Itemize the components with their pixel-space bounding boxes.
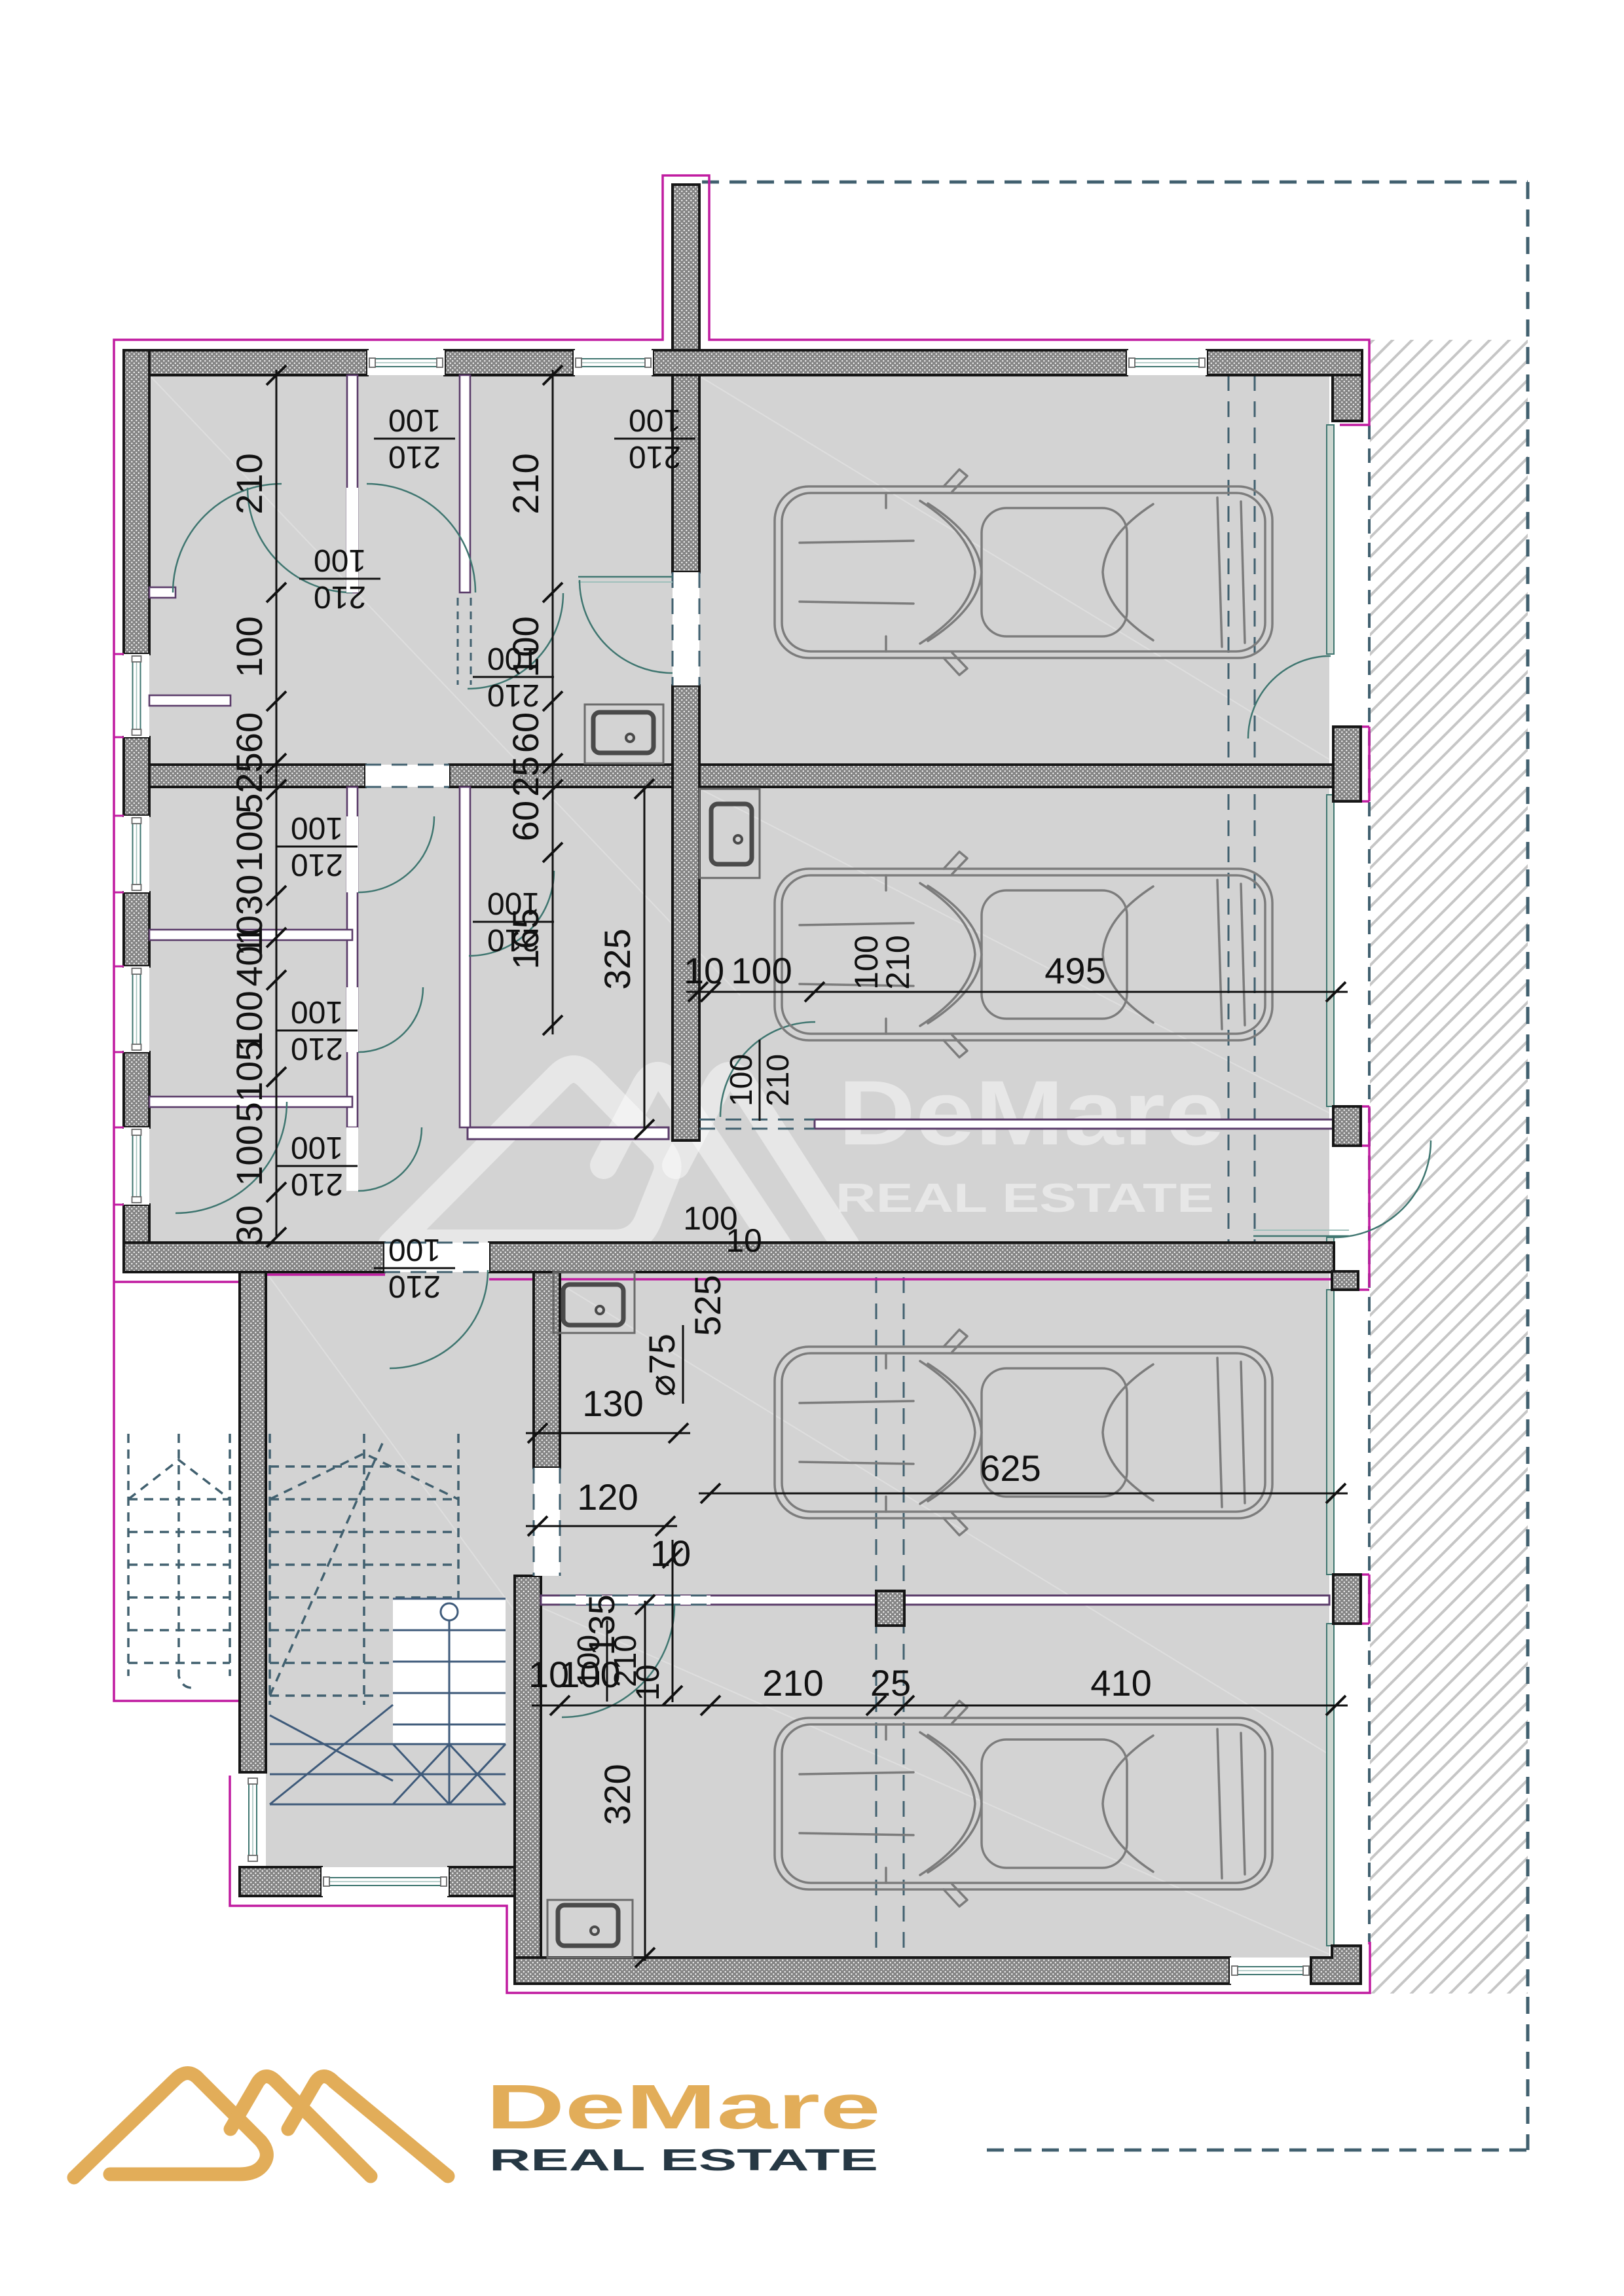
svg-text:625: 625 xyxy=(980,1448,1041,1489)
svg-text:100: 100 xyxy=(229,616,270,677)
svg-text:100: 100 xyxy=(229,1125,270,1186)
svg-text:210: 210 xyxy=(291,847,343,882)
svg-text:100: 100 xyxy=(229,811,270,871)
svg-text:100: 100 xyxy=(487,886,540,920)
svg-text:130: 130 xyxy=(582,1383,643,1424)
svg-text:210: 210 xyxy=(879,935,916,989)
svg-text:401: 401 xyxy=(229,925,270,986)
svg-text:100: 100 xyxy=(731,950,792,991)
svg-text:DeMare: DeMare xyxy=(838,1061,1225,1164)
svg-text:100: 100 xyxy=(572,1635,606,1687)
svg-text:210: 210 xyxy=(388,1269,441,1303)
svg-text:5105: 5105 xyxy=(229,1041,270,1123)
svg-text:REAL ESTATE: REAL ESTATE xyxy=(489,2143,878,2177)
svg-text:30: 30 xyxy=(229,1205,270,1246)
svg-text:DeMare: DeMare xyxy=(486,2072,881,2142)
svg-text:210: 210 xyxy=(291,1031,343,1066)
svg-text:210: 210 xyxy=(761,1054,796,1106)
svg-text:120: 120 xyxy=(577,1476,638,1518)
svg-text:210: 210 xyxy=(487,678,540,712)
svg-text:525: 525 xyxy=(687,1275,728,1336)
svg-text:320: 320 xyxy=(597,1764,638,1825)
svg-text:60: 60 xyxy=(229,712,270,753)
svg-text:10: 10 xyxy=(650,1533,691,1574)
svg-text:525: 525 xyxy=(229,752,270,813)
svg-text:210: 210 xyxy=(629,439,681,474)
svg-text:100: 100 xyxy=(291,1130,343,1165)
svg-text:60: 60 xyxy=(505,801,546,841)
svg-text:325: 325 xyxy=(597,928,638,989)
svg-text:10: 10 xyxy=(726,1222,762,1259)
svg-text:100: 100 xyxy=(291,994,343,1029)
svg-text:100: 100 xyxy=(629,403,681,437)
svg-text:210: 210 xyxy=(388,439,441,474)
svg-text:60: 60 xyxy=(505,712,546,753)
svg-text:410: 410 xyxy=(1090,1662,1151,1704)
svg-text:100: 100 xyxy=(314,543,366,577)
svg-text:10: 10 xyxy=(629,1664,666,1701)
svg-text:100: 100 xyxy=(388,403,441,437)
svg-text:100: 100 xyxy=(388,1232,441,1267)
svg-text:495: 495 xyxy=(1044,950,1105,991)
svg-text:100: 100 xyxy=(487,641,540,676)
svg-text:10: 10 xyxy=(684,950,724,991)
svg-text:210: 210 xyxy=(291,1167,343,1201)
svg-text:25: 25 xyxy=(870,1662,911,1704)
svg-text:210: 210 xyxy=(762,1662,823,1704)
svg-text:⌀75: ⌀75 xyxy=(641,1334,682,1396)
svg-text:25: 25 xyxy=(505,756,546,797)
svg-text:210: 210 xyxy=(314,579,366,614)
svg-text:100: 100 xyxy=(291,811,343,845)
svg-text:210: 210 xyxy=(487,922,540,957)
svg-text:210: 210 xyxy=(229,453,270,514)
svg-text:210: 210 xyxy=(505,453,546,514)
svg-text:REAL ESTATE: REAL ESTATE xyxy=(836,1176,1214,1221)
svg-text:100: 100 xyxy=(724,1054,759,1106)
